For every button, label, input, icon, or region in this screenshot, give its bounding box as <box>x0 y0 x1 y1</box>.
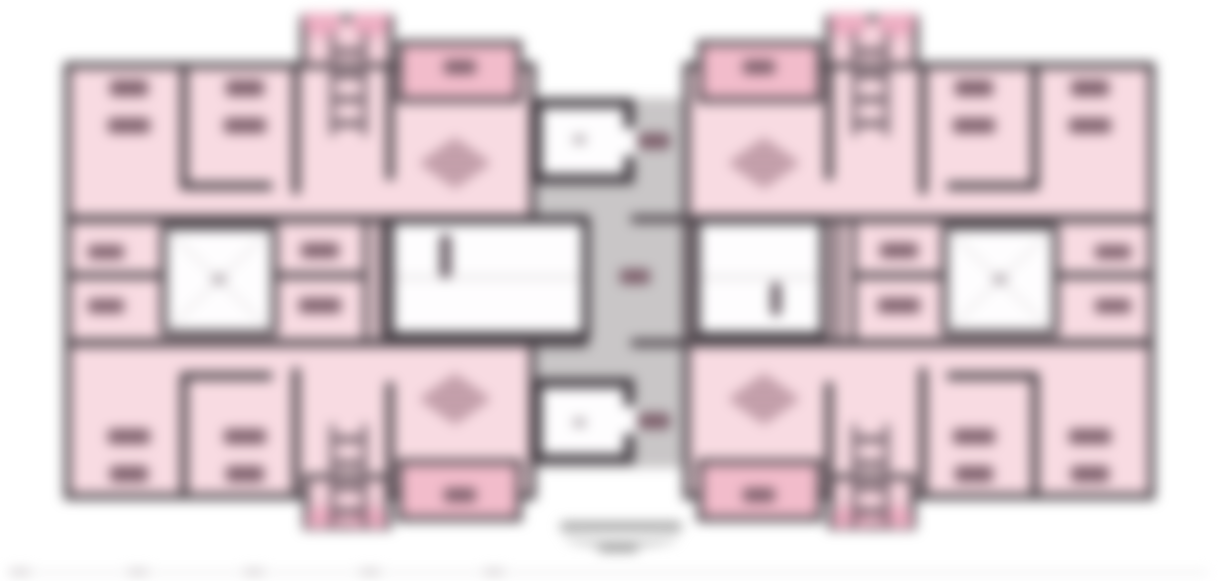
room-label-blob-right-bottom <box>953 429 995 444</box>
room-label-blob <box>88 245 124 259</box>
wall-divider <box>64 272 160 279</box>
balcony-label-blob-bottom <box>444 488 476 502</box>
lift-lobby-opening-bottom <box>624 406 636 434</box>
ladder-rung <box>330 436 367 443</box>
appendage-bump <box>304 13 341 37</box>
ladder-rung-right <box>852 508 889 515</box>
wall-vertical-bottom <box>386 382 394 500</box>
floor-plan-screenshot <box>0 0 1218 581</box>
balcony-label-blob <box>444 60 476 74</box>
room-label-blob-bottom <box>110 466 148 482</box>
wall-divider <box>278 272 364 279</box>
room-label-blob-right-bottom <box>1069 429 1111 444</box>
room-label-blob-right <box>1095 245 1131 259</box>
floor-plan-canvas <box>0 0 1218 581</box>
ladder-rung <box>330 48 367 55</box>
wall-vertical-right <box>825 62 833 180</box>
wall-horizontal <box>180 182 272 190</box>
wall-vertical-bottom <box>292 368 300 500</box>
lift-lobby-mark-bottom <box>573 418 586 427</box>
wall-divider-right <box>855 272 941 279</box>
room-label-blob <box>110 80 148 96</box>
stair-mid-landing-line <box>394 276 582 279</box>
ladder-rung-right <box>852 96 889 103</box>
ladder-rung-right <box>852 48 889 55</box>
scale-ruler-tick <box>10 569 30 575</box>
ladder-rung <box>330 96 367 103</box>
room-label-blob-bottom <box>224 429 266 444</box>
ladder-rung <box>330 508 367 515</box>
double-wall-right <box>850 215 856 345</box>
balcony-label-blob-right-bottom <box>743 488 775 502</box>
stair-direction-arrow <box>771 282 781 316</box>
wall-vertical-bottom <box>180 372 188 500</box>
scale-ruler-tick <box>360 569 380 575</box>
scale-ruler-tick <box>484 569 504 575</box>
ladder-rung <box>330 72 367 79</box>
corridor-label-blob <box>620 269 650 284</box>
ladder-rung-right <box>852 72 889 79</box>
room-label-blob <box>224 118 266 133</box>
wall-horizontal-right <box>947 182 1039 190</box>
corridor-label-blob-bottom <box>638 413 670 429</box>
double-wall <box>363 215 369 345</box>
room-label-blob <box>301 243 339 258</box>
room-label-blob-right <box>880 243 918 258</box>
room-label-blob-bottom <box>226 466 264 482</box>
scale-ruler-tick <box>128 569 148 575</box>
appendage-bump-right <box>830 13 867 37</box>
wall-vertical-right <box>1031 62 1039 190</box>
room-label-blob-right <box>1095 299 1131 313</box>
room-label-blob <box>108 118 150 133</box>
corridor-label-blob <box>638 133 670 149</box>
wall-vertical-right-bottom <box>825 382 833 500</box>
ladder-rung-right <box>852 484 889 491</box>
lift-lobby-opening <box>624 128 636 156</box>
wall-divider-right <box>1059 272 1155 279</box>
appendage-bump <box>352 13 389 37</box>
ladder-rung-right <box>852 120 889 127</box>
wall-band-right-bottom <box>631 339 1155 347</box>
scale-ruler-tick <box>244 569 264 575</box>
lift-lobby-mark <box>573 135 586 144</box>
room-label-blob <box>88 299 124 313</box>
room-label-blob-right <box>1071 80 1109 96</box>
wall-vertical <box>180 62 188 190</box>
lightwell-center-mark <box>212 274 226 284</box>
room-label-blob-right-bottom <box>955 466 993 482</box>
ladder-rung <box>330 120 367 127</box>
ladder-rung <box>330 484 367 491</box>
wall-vertical-right-bottom <box>1031 372 1039 500</box>
room-label-blob-right <box>955 80 993 96</box>
ladder-rung-right <box>852 460 889 467</box>
wall-vertical <box>292 62 300 194</box>
room-label-blob <box>226 80 264 96</box>
ladder-rung-right <box>852 436 889 443</box>
wall-vertical <box>386 62 394 180</box>
wall-band-bottom <box>64 339 588 347</box>
wall-horizontal-bottom <box>180 372 272 380</box>
room-label-blob-right <box>1069 118 1111 133</box>
caption-text-blob <box>598 546 638 552</box>
double-wall <box>379 215 385 345</box>
ladder-rung <box>330 460 367 467</box>
room-label-blob <box>299 298 341 313</box>
lightwell-center-mark-right <box>993 274 1007 284</box>
stair-mid-landing-line <box>700 276 820 279</box>
wall-vertical-right <box>919 62 927 194</box>
double-wall-right <box>834 215 840 345</box>
room-label-blob-right <box>878 298 920 313</box>
wall-horizontal-right-bottom <box>947 372 1039 380</box>
scale-ruler-line <box>8 571 1208 574</box>
caption-underline-swoosh <box>563 528 679 546</box>
room-label-blob-right <box>953 118 995 133</box>
room-label-blob-right-bottom <box>1071 466 1109 482</box>
room-label-blob-bottom <box>108 429 150 444</box>
stair-direction-arrow <box>440 234 451 278</box>
wall-vertical-right-bottom <box>919 368 927 500</box>
balcony-label-blob-right <box>743 60 775 74</box>
